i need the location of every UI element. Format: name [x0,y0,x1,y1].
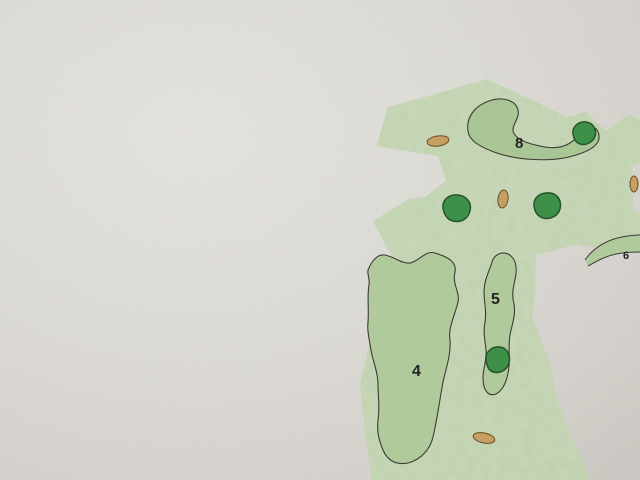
svg-text:6: 6 [623,250,629,262]
svg-text:4: 4 [412,363,421,380]
svg-text:8: 8 [515,135,523,152]
svg-text:5: 5 [491,291,500,308]
